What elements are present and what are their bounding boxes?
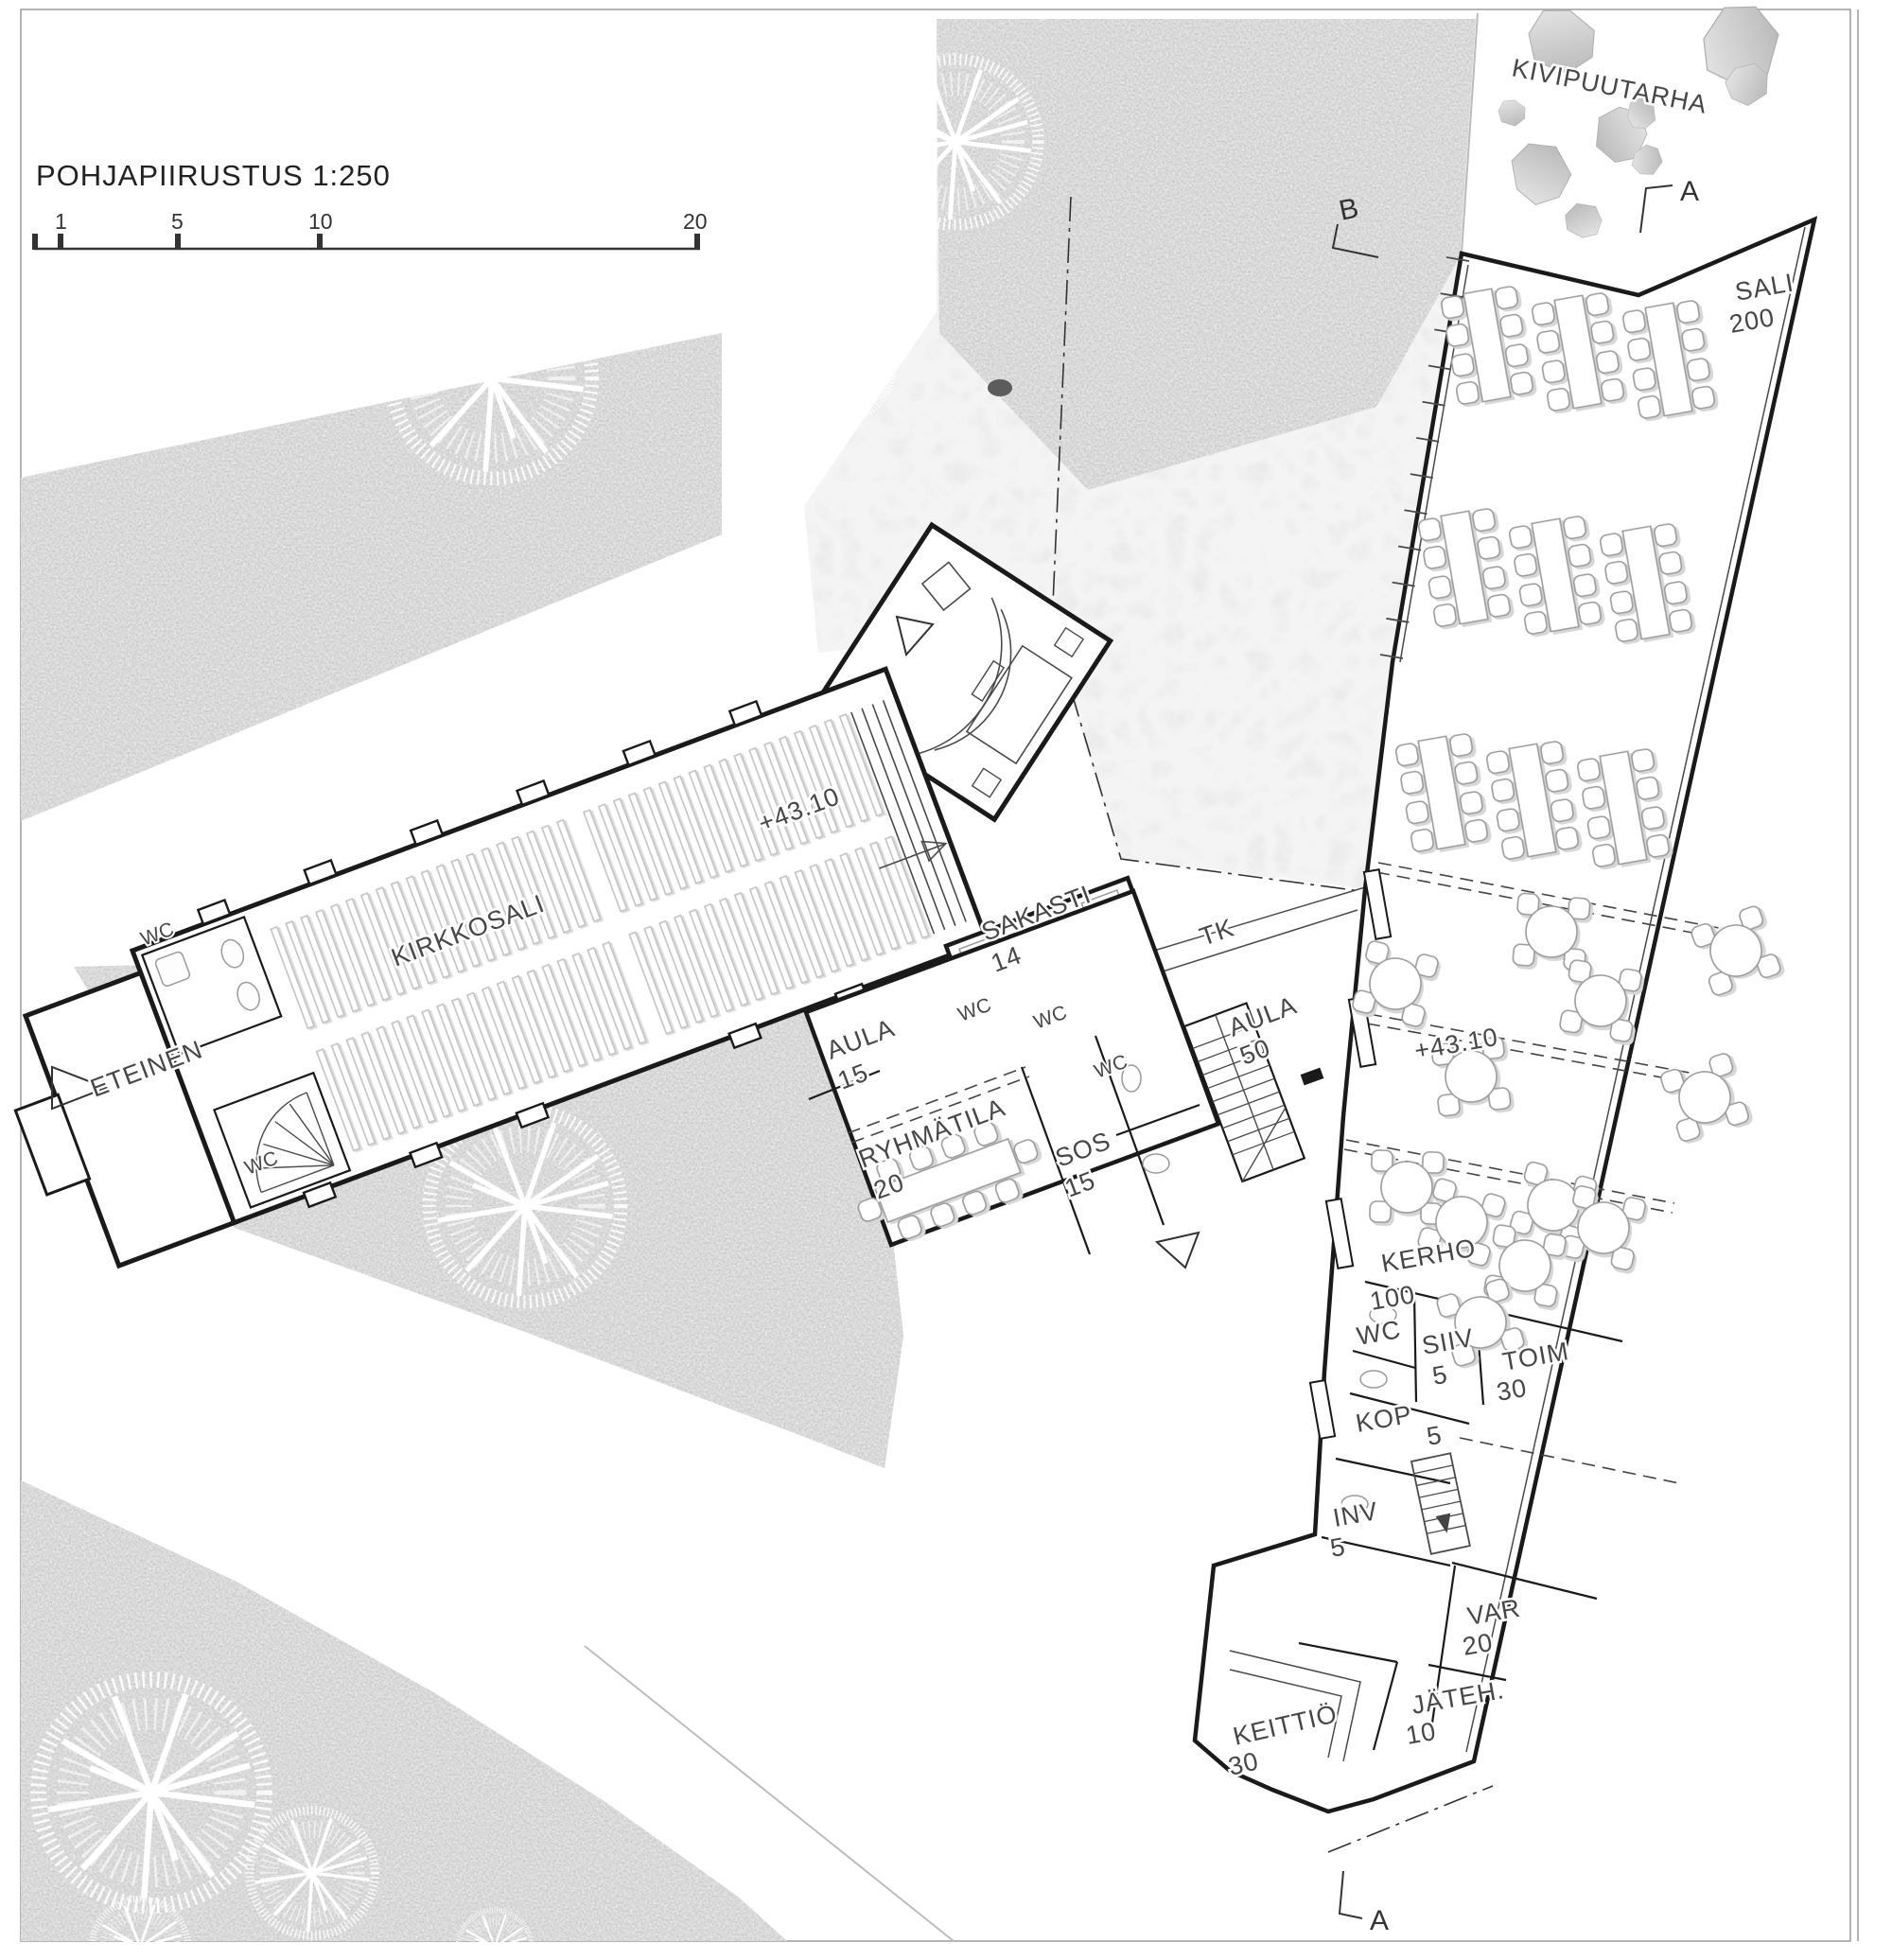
stone-icon (1504, 133, 1577, 209)
detail-line (1213, 1078, 1275, 1102)
detail-line (1228, 1118, 1290, 1142)
stone-icon (1560, 199, 1604, 242)
exit-arrow-south (1157, 1233, 1199, 1268)
room-capacity-jateh: 10 (1404, 1717, 1439, 1750)
label-tk: TK (1196, 913, 1237, 951)
floor-plan-sheet: POHJAPIIRUSTUS 1:250 1 5 10 20 A B A KIV… (0, 0, 1892, 1960)
room-capacity-toim: 30 (1495, 1374, 1530, 1407)
stone-garden-stones (1495, 0, 1791, 241)
room-label-kivipuutarha: KIVIPUUTARHA (1510, 53, 1709, 118)
round-table-group (1659, 1052, 1750, 1143)
walkway-column (1301, 1068, 1324, 1086)
drawing-title: POHJAPIIRUSTUS 1:250 (36, 159, 391, 192)
tree-icon (562, 209, 657, 305)
scale-tick-1: 1 (55, 209, 67, 234)
detail-line (1208, 1065, 1270, 1089)
round-table-group (1370, 1150, 1445, 1225)
scale-tick-10: 10 (308, 209, 333, 234)
room-capacity-var: 20 (1461, 1628, 1496, 1661)
section-marker-a-bottom: A (1340, 1871, 1389, 1936)
scale-tick-5: 5 (171, 209, 184, 234)
grass-band-top-left (21, 333, 722, 821)
detail-line (1233, 1131, 1295, 1155)
courtyard-drain (988, 379, 1012, 396)
svg-text:A: A (1370, 1905, 1389, 1936)
floor-plan-drawing: POHJAPIIRUSTUS 1:250 1 5 10 20 A B A KIV… (0, 0, 1892, 1960)
stone-icon (1495, 96, 1531, 130)
section-marker-a-top: A (1640, 176, 1699, 233)
round-table-group (1690, 904, 1781, 996)
svg-text:A: A (1680, 176, 1699, 207)
walkway-edge-upper (1129, 887, 1365, 958)
tree-icon (792, 319, 893, 420)
detail-line (1218, 1092, 1280, 1115)
scale-tick-20: 20 (683, 209, 708, 234)
